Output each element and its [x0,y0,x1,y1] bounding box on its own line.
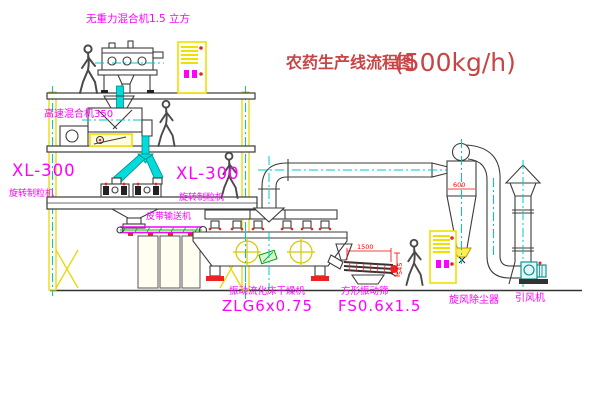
granulator-center-name: 旋转制粒机 [179,191,224,203]
gravity-mixer-label: 无重力混合机1.5 立方 [86,12,190,25]
dryer-model-label: ZLG6x0.75 [222,297,313,315]
granulator-left-model: XL-300 [12,161,76,180]
induced-draft-fan-unit [519,262,548,285]
screen-height-dim: 545 [396,263,404,275]
worker-second-floor [158,101,174,146]
granulator-left-unit [101,178,129,197]
drawing-title: 农药生产线流程图 (500kg/h) [285,48,516,77]
granulator-left-name: 旋转制粒机 [9,187,54,199]
worker-top-floor [80,45,97,93]
screen-name-label: 方形振动筛 [341,285,389,297]
belt-conveyor-label: 皮带输送机 [146,210,191,222]
granulator-center-model: XL-300 [176,164,240,183]
fluid-bed-dryer [193,210,347,290]
cyclone-label: 旋风除尘器 [449,293,499,306]
vibrating-screen: 1500 545 [336,243,404,284]
high-speed-mixer-label: 高速混合机350 [44,107,113,120]
cyclone-diameter-dim: 600 [453,181,465,189]
title-capacity: (500kg/h) [394,48,516,77]
gravity-free-mixer [95,41,164,93]
process-flow-drawing: 1500 545 600 [0,0,600,403]
screen-model-label: FS0.6x1.5 [338,297,421,315]
fan-label: 引风机 [515,291,545,304]
granulator-right-unit [133,178,162,197]
flow-diagram-canvas: 1500 545 600 [0,0,600,403]
dryer-name-label: 振动流化床干燥机 [229,285,306,297]
vibration-mounts [209,221,332,230]
worker-ground-floor [406,240,422,285]
control-panel-lower [430,231,456,283]
screen-length-dim: 1500 [357,243,374,251]
control-panel-upper [178,42,206,93]
